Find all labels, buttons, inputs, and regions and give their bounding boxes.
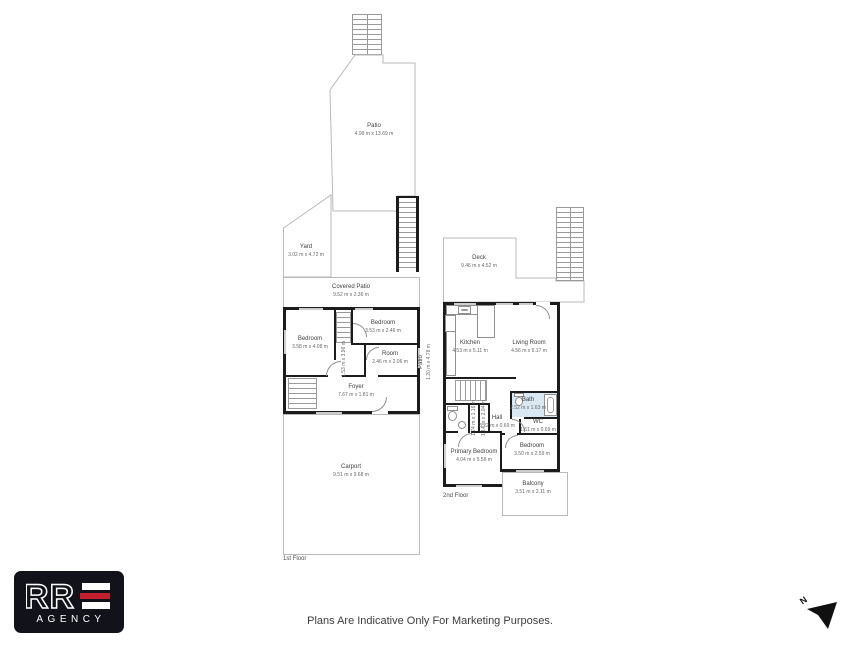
- wall: [557, 305, 560, 472]
- logo-letter-e-top-bar: [82, 583, 110, 590]
- disclaimer-text: Plans Are Indicative Only For Marketing …: [0, 615, 860, 627]
- wall: [500, 431, 502, 472]
- room-label-side-patio: Patio 1.20 m x 4.78 m: [418, 344, 432, 380]
- wall: [378, 375, 417, 377]
- door-arc: [536, 305, 550, 319]
- floor-name-second: 2nd Floor: [443, 493, 468, 499]
- room-label-living-room: Living Room 4.56 m x 6.17 m: [511, 340, 547, 354]
- logo-letters-rr: RR: [26, 580, 75, 612]
- exterior-stairs: [352, 14, 382, 55]
- logo-mark: RR: [26, 580, 112, 612]
- window: [316, 412, 342, 414]
- bathtub: [544, 394, 557, 416]
- closet-shelves: [336, 312, 351, 343]
- room-label-patio: Patio 4.99 m x 13.69 m: [355, 123, 394, 137]
- room-label-kitchen: Kitchen 4.53 m x 5.11 m: [452, 340, 487, 354]
- north-arrow: N: [793, 588, 845, 634]
- window: [444, 444, 446, 468]
- door-arc: [372, 397, 387, 412]
- wall: [500, 433, 505, 435]
- basin: [458, 421, 466, 429]
- wall: [446, 377, 516, 379]
- wall: [283, 411, 420, 414]
- room-label-hall1: 1.53 m x 3.96 m: [341, 341, 348, 377]
- room-label-yard: Yard 3.02 m x 4.72 m: [288, 244, 324, 258]
- logo-letter-e-bottom-bar: [82, 602, 110, 609]
- window: [284, 330, 286, 354]
- window: [456, 485, 482, 487]
- wall: [468, 405, 470, 433]
- room-label-closet: 1.14 m x 2.04 m: [481, 400, 488, 436]
- room-label-wc: WC 1.61 m x 0.69 m: [520, 419, 556, 433]
- floorplan-canvas: Patio 4.99 m x 13.69 m Yard 3.02 m x 4.7…: [0, 0, 860, 645]
- interior-stairs: [288, 378, 317, 409]
- room-label-bedroom2f: Bedroom 3.50 m x 2.59 m: [514, 443, 550, 457]
- wall: [285, 375, 328, 377]
- room-label-bedroom-top: Bedroom 3.53 m x 2.46 m: [365, 320, 401, 334]
- window: [496, 303, 513, 305]
- room-label-room: Room 2.46 m x 2.06 m: [372, 351, 408, 365]
- room-label-wc-small: 1.74 m x 1.16 m: [471, 400, 478, 436]
- carport-outline: [283, 414, 420, 555]
- wall: [443, 431, 458, 433]
- kitchen-sink: [458, 306, 471, 314]
- interior-stairs: [455, 380, 487, 401]
- toilet-bowl: [448, 411, 457, 421]
- room-label-bath: Bath 2.52 m x 1.63 m: [510, 397, 546, 411]
- wall: [364, 345, 366, 375]
- exterior-side-stairs: [396, 196, 419, 272]
- room-label-balcony: Balcony 3.51 m x 2.11 m: [515, 481, 550, 495]
- floor-name-first: 1st Floor: [283, 556, 306, 562]
- room-label-foyer: Foyer 7.67 m x 1.81 m: [338, 384, 374, 398]
- window: [299, 308, 323, 310]
- yard-outline: [283, 190, 333, 278]
- room-label-bedroom-left: Bedroom 3.58 m x 4.08 m: [292, 336, 328, 350]
- wall: [353, 343, 417, 345]
- wall: [283, 310, 286, 414]
- room-label-covered-patio: Covered Patio 9.52 m x 2.36 m: [332, 284, 370, 298]
- window: [355, 308, 373, 310]
- window: [519, 303, 533, 305]
- stove: [445, 315, 456, 332]
- north-arrow-shape: [807, 602, 837, 629]
- room-label-carport: Carport 9.51 m x 9.68 m: [333, 464, 369, 478]
- room-label-deck: Deck 9.46 m x 4.52 m: [461, 255, 497, 269]
- deck-stairs: [556, 207, 584, 281]
- door-arc: [326, 361, 341, 376]
- logo-letter-e-red-bar: [80, 593, 110, 599]
- kitchen-island: [477, 305, 495, 338]
- north-label: N: [798, 594, 809, 606]
- wall: [517, 433, 560, 435]
- room-label-primary-bedroom: Primary Bedroom 4.04 m x 5.56 m: [451, 449, 498, 463]
